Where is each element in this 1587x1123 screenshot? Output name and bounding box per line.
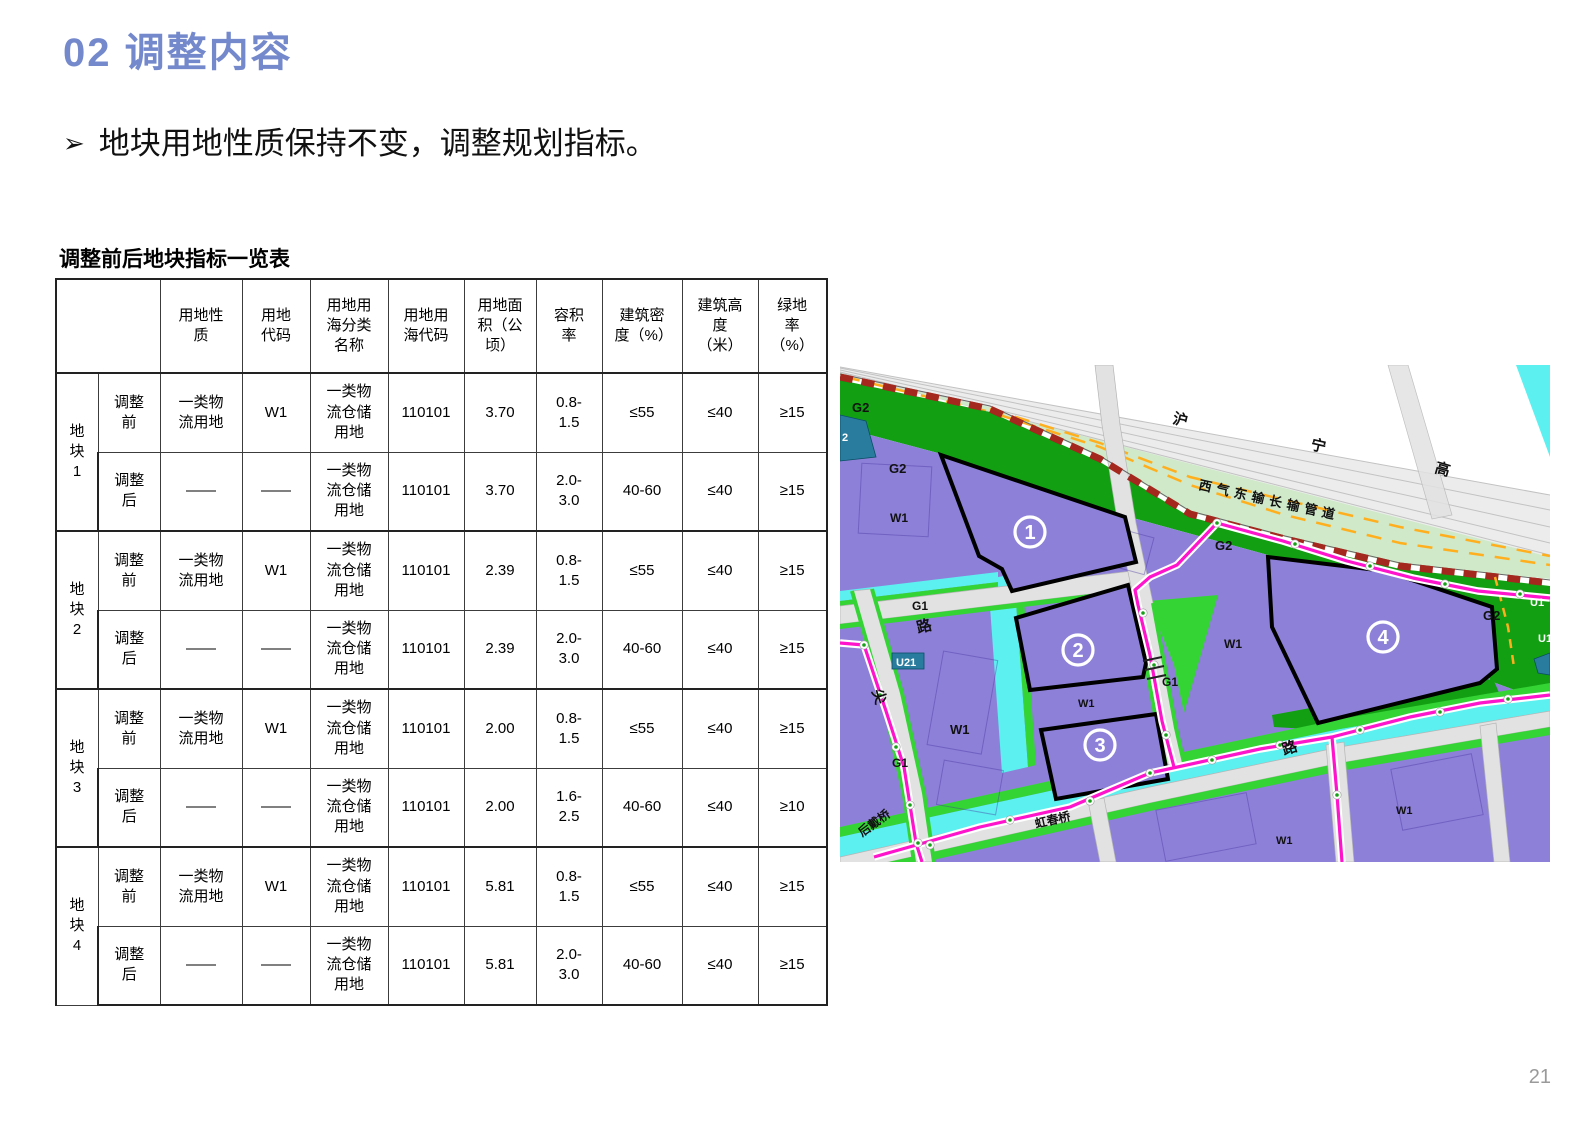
svg-text:1: 1 [1024, 522, 1035, 544]
value-cell: —— [242, 768, 310, 847]
svg-text:3: 3 [1094, 735, 1105, 757]
column-header: 建筑密度（%） [602, 279, 682, 373]
value-cell: 3.70 [464, 373, 536, 452]
plot-group-label: 地块3 [56, 689, 98, 847]
table-container: 用地性质用地代码用地用海分类名称用地用海代码用地面积（公顷）容积率建筑密度（%）… [55, 278, 828, 1006]
table-row: 地块2调整前一类物流用地W1一类物流仓储用地1101012.390.8-1.5≤… [56, 531, 827, 610]
table-head: 用地性质用地代码用地用海分类名称用地用海代码用地面积（公顷）容积率建筑密度（%）… [56, 279, 827, 373]
value-cell: —— [160, 452, 242, 531]
phase-cell: 调整后 [98, 610, 160, 689]
value-cell: 0.8-1.5 [536, 373, 602, 452]
phase-cell: 调整前 [98, 531, 160, 610]
value-cell: 40-60 [602, 768, 682, 847]
bullet-text: 地块用地性质保持不变，调整规划指标。 [99, 118, 657, 163]
value-cell: 110101 [388, 373, 464, 452]
phase-cell: 调整前 [98, 847, 160, 926]
value-cell: ≥15 [758, 847, 827, 926]
value-cell: 2.00 [464, 689, 536, 768]
value-cell: 5.81 [464, 926, 536, 1005]
phase-cell: 调整前 [98, 373, 160, 452]
value-cell: ≥15 [758, 689, 827, 768]
column-header: 用地用海代码 [388, 279, 464, 373]
value-cell: 一类物流仓储用地 [310, 452, 388, 531]
value-cell: ≤55 [602, 847, 682, 926]
map-label: G2 [852, 400, 869, 415]
map-label: W1 [1276, 835, 1293, 847]
table-row: 调整后————一类物流仓储用地1101012.001.6-2.540-60≤40… [56, 768, 827, 847]
value-cell: W1 [242, 373, 310, 452]
slide: 02 调整内容 ➢ 地块用地性质保持不变，调整规划指标。 调整前后地块指标一览表… [0, 0, 1587, 1123]
value-cell: 0.8-1.5 [536, 689, 602, 768]
bullet-point: ➢ 地块用地性质保持不变，调整规划指标。 [63, 118, 657, 163]
value-cell: 40-60 [602, 610, 682, 689]
svg-text:4: 4 [1377, 627, 1389, 649]
plot-group-label: 地块2 [56, 531, 98, 689]
value-cell: 110101 [388, 689, 464, 768]
map-label: G2 [1483, 608, 1500, 623]
map-label: 2 [842, 432, 848, 444]
value-cell: ≥15 [758, 610, 827, 689]
value-cell: ≥15 [758, 531, 827, 610]
value-cell: —— [160, 768, 242, 847]
value-cell: 110101 [388, 847, 464, 926]
phase-cell: 调整后 [98, 768, 160, 847]
phase-cell: 调整后 [98, 926, 160, 1005]
value-cell: 2.39 [464, 531, 536, 610]
value-cell: —— [160, 926, 242, 1005]
table-row: 地块4调整前一类物流用地W1一类物流仓储用地1101015.810.8-1.5≤… [56, 847, 827, 926]
page-title: 02 调整内容 [63, 20, 293, 78]
table-title: 调整前后地块指标一览表 [59, 243, 290, 273]
map-label: W1 [1078, 698, 1095, 710]
value-cell: ≥15 [758, 452, 827, 531]
value-cell: 110101 [388, 452, 464, 531]
value-cell: W1 [242, 531, 310, 610]
map-label: U1 [1538, 633, 1550, 645]
value-cell: ≤40 [682, 847, 758, 926]
phase-cell: 调整前 [98, 689, 160, 768]
table-row: 调整后————一类物流仓储用地1101012.392.0-3.040-60≤40… [56, 610, 827, 689]
value-cell: 2.0-3.0 [536, 610, 602, 689]
map-label: W1 [890, 511, 908, 525]
value-cell: 110101 [388, 531, 464, 610]
map-label: G1 [1162, 675, 1178, 689]
column-header: 绿地率（%） [758, 279, 827, 373]
value-cell: 2.00 [464, 768, 536, 847]
map-label: G1 [892, 756, 908, 770]
value-cell: 一类物流用地 [160, 373, 242, 452]
map-label: W1 [1396, 805, 1413, 817]
value-cell: ≥10 [758, 768, 827, 847]
value-cell: ≤40 [682, 373, 758, 452]
value-cell: 40-60 [602, 926, 682, 1005]
value-cell: —— [160, 610, 242, 689]
value-cell: —— [242, 610, 310, 689]
indicator-table: 用地性质用地代码用地用海分类名称用地用海代码用地面积（公顷）容积率建筑密度（%）… [55, 278, 828, 1006]
phase-cell: 调整后 [98, 452, 160, 531]
value-cell: 1.6-2.5 [536, 768, 602, 847]
plot-group-label: 地块4 [56, 847, 98, 1005]
value-cell: ≤55 [602, 689, 682, 768]
column-header: 容积率 [536, 279, 602, 373]
value-cell: 5.81 [464, 847, 536, 926]
table-row: 地块1调整前一类物流用地W1一类物流仓储用地1101013.700.8-1.5≤… [56, 373, 827, 452]
planning-map: G22G2W1G1路U21尖G1W1W1G1G2W1沪宁高西气东输长输管道G2U… [840, 365, 1550, 862]
map-label: G2 [889, 461, 906, 476]
value-cell: 0.8-1.5 [536, 531, 602, 610]
plot-group-label: 地块1 [56, 373, 98, 531]
bullet-arrow-icon: ➢ [63, 128, 85, 159]
value-cell: ≤40 [682, 926, 758, 1005]
value-cell: —— [242, 452, 310, 531]
value-cell: ≤40 [682, 452, 758, 531]
value-cell: 一类物流用地 [160, 847, 242, 926]
value-cell: 一类物流仓储用地 [310, 610, 388, 689]
value-cell: 110101 [388, 768, 464, 847]
column-header: 用地性质 [160, 279, 242, 373]
value-cell: 0.8-1.5 [536, 847, 602, 926]
value-cell: 一类物流用地 [160, 689, 242, 768]
map-label: U21 [896, 657, 916, 669]
value-cell: 2.39 [464, 610, 536, 689]
page-number: 21 [1529, 1066, 1551, 1089]
corner-cell [56, 279, 160, 373]
column-header: 用地用海分类名称 [310, 279, 388, 373]
value-cell: ≤40 [682, 610, 758, 689]
column-header: 用地代码 [242, 279, 310, 373]
value-cell: 一类物流仓储用地 [310, 768, 388, 847]
value-cell: ≤40 [682, 768, 758, 847]
value-cell: 一类物流仓储用地 [310, 531, 388, 610]
value-cell: 40-60 [602, 452, 682, 531]
value-cell: 3.70 [464, 452, 536, 531]
map-label: U1 [1530, 597, 1544, 609]
value-cell: 一类物流仓储用地 [310, 373, 388, 452]
value-cell: —— [242, 926, 310, 1005]
column-header: 建筑高度（米） [682, 279, 758, 373]
value-cell: ≥15 [758, 926, 827, 1005]
value-cell: 2.0-3.0 [536, 926, 602, 1005]
table-row: 调整后————一类物流仓储用地1101015.812.0-3.040-60≤40… [56, 926, 827, 1005]
value-cell: W1 [242, 689, 310, 768]
value-cell: 110101 [388, 926, 464, 1005]
value-cell: 一类物流仓储用地 [310, 926, 388, 1005]
value-cell: 一类物流用地 [160, 531, 242, 610]
svg-text:2: 2 [1072, 640, 1083, 662]
map-label: W1 [950, 722, 970, 737]
value-cell: ≤40 [682, 689, 758, 768]
value-cell: 一类物流仓储用地 [310, 689, 388, 768]
value-cell: 一类物流仓储用地 [310, 847, 388, 926]
column-header: 用地面积（公顷） [464, 279, 536, 373]
value-cell: 2.0-3.0 [536, 452, 602, 531]
table-row: 地块3调整前一类物流用地W1一类物流仓储用地1101012.000.8-1.5≤… [56, 689, 827, 768]
value-cell: ≤55 [602, 373, 682, 452]
value-cell: ≤40 [682, 531, 758, 610]
map-label: G2 [1215, 538, 1232, 553]
value-cell: W1 [242, 847, 310, 926]
value-cell: ≤55 [602, 531, 682, 610]
table-body: 地块1调整前一类物流用地W1一类物流仓储用地1101013.700.8-1.5≤… [56, 373, 827, 1005]
map-label: W1 [1224, 637, 1242, 651]
value-cell: ≥15 [758, 373, 827, 452]
table-row: 调整后————一类物流仓储用地1101013.702.0-3.040-60≤40… [56, 452, 827, 531]
map-label: G1 [912, 599, 928, 613]
value-cell: 110101 [388, 610, 464, 689]
